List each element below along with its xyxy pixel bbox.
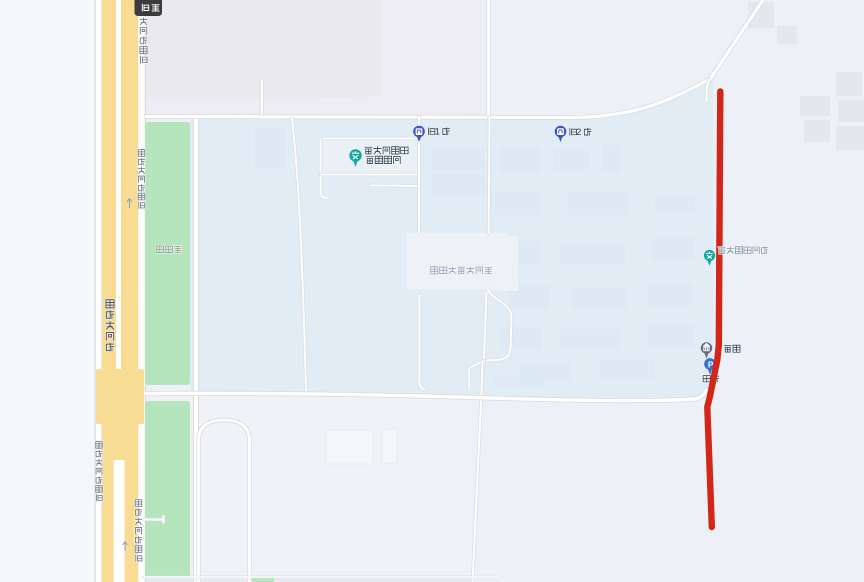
- svg-text:2: 2: [576, 127, 581, 137]
- svg-text:1: 1: [435, 126, 440, 136]
